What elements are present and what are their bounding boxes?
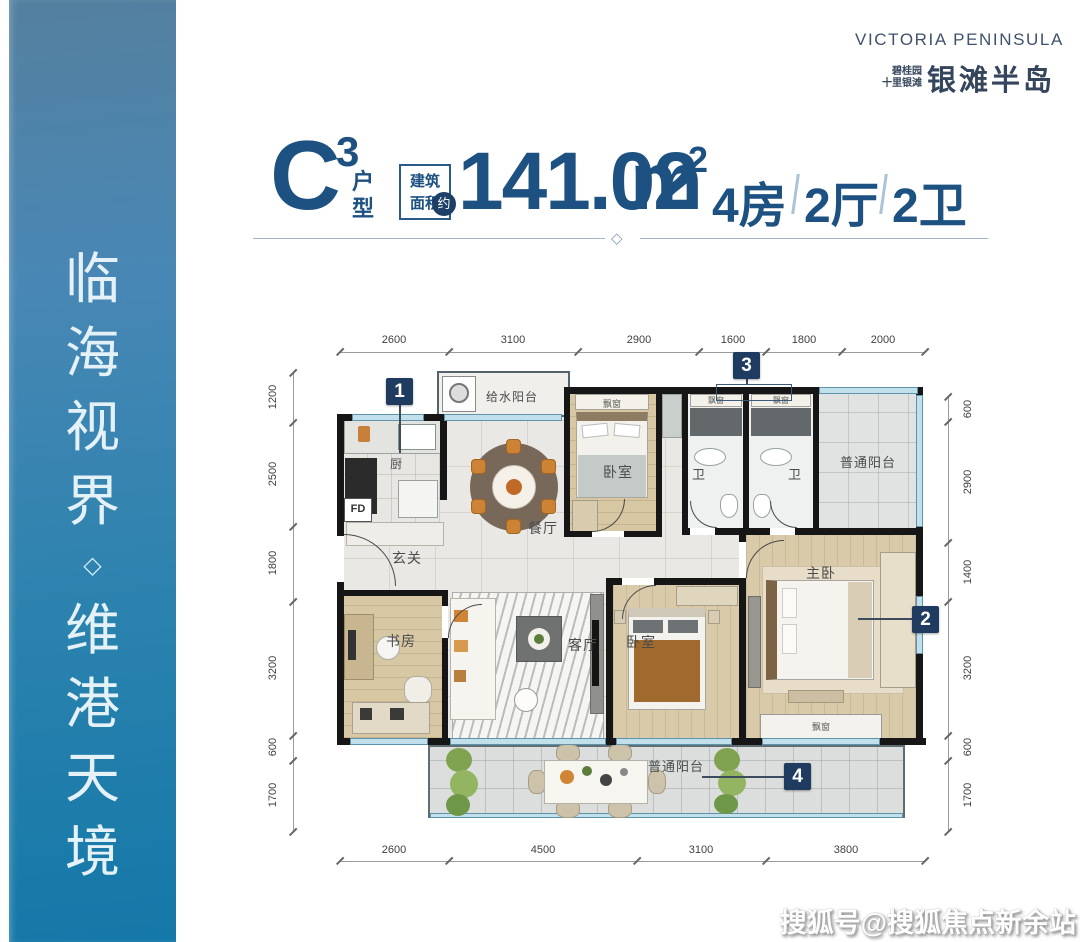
shower-area xyxy=(751,408,811,436)
pillow xyxy=(581,423,608,439)
plant-icon xyxy=(718,770,746,796)
brand-logo: VICTORIA PENINSULA 碧桂园 十里银滩 银滩半岛 xyxy=(855,30,1055,99)
sofa-pillow xyxy=(454,670,466,682)
brand-logo-en: VICTORIA PENINSULA xyxy=(855,30,1055,50)
dim-label: 3200 xyxy=(267,646,279,690)
dim-label: 600 xyxy=(962,387,974,431)
wall xyxy=(337,590,448,596)
window xyxy=(350,738,428,745)
dim-label: 3100 xyxy=(679,844,723,856)
toilet xyxy=(753,494,771,518)
dim-tick xyxy=(921,348,929,356)
food-item xyxy=(582,766,592,776)
bay-window-label: 飘窗 xyxy=(760,720,882,733)
dim-label: 4500 xyxy=(521,844,565,856)
pillow xyxy=(668,620,698,633)
door-opening xyxy=(770,528,795,535)
kitchen-deco xyxy=(358,426,370,442)
door-opening xyxy=(442,606,448,638)
window xyxy=(352,414,424,421)
plant-icon xyxy=(714,794,738,814)
area-label-line1: 建筑 xyxy=(401,170,449,191)
kitchen-fridge xyxy=(398,480,438,518)
media-cabinet xyxy=(748,596,761,688)
dim-label: 1200 xyxy=(267,375,279,419)
dim-label: 1800 xyxy=(267,541,279,585)
area-label-badge: 约 xyxy=(432,192,456,216)
unit-type-char2: 型 xyxy=(352,191,374,223)
slogan-char: 维 xyxy=(65,603,120,658)
marker-4-leader xyxy=(702,776,784,778)
slogan-char: 天 xyxy=(65,751,120,806)
duct-shaft xyxy=(662,394,682,438)
spec-divider xyxy=(791,174,800,214)
dim-label: 2600 xyxy=(372,844,416,856)
dim-label: 1800 xyxy=(782,334,826,346)
plant-icon xyxy=(446,794,470,816)
door-opening xyxy=(739,542,746,578)
marker-2-leader xyxy=(858,618,912,620)
window xyxy=(616,738,732,745)
wall xyxy=(606,578,613,745)
window xyxy=(916,395,923,527)
brand-logo-cn-small-2: 十里银滩 xyxy=(882,78,922,90)
dim-tick xyxy=(921,857,929,865)
marker-1: 1 xyxy=(386,378,413,405)
dim-label: 2900 xyxy=(962,460,974,504)
door-opening xyxy=(592,531,624,537)
room-label-kitchen: 厨 xyxy=(390,455,403,472)
title-underline xyxy=(640,238,988,239)
dim-label: 3800 xyxy=(824,844,868,856)
plant-icon xyxy=(714,748,740,772)
bed-bench xyxy=(788,690,844,703)
room-label-foyer: 玄关 xyxy=(392,548,422,568)
spec-halls: 2厅 xyxy=(804,166,879,236)
dim-line-right xyxy=(948,397,949,832)
wall xyxy=(440,414,447,500)
unit-type-letter: C xyxy=(270,126,341,224)
dim-label: 2500 xyxy=(267,452,279,496)
wall xyxy=(739,528,923,535)
patio-table xyxy=(544,760,648,804)
dim-label: 3100 xyxy=(491,334,535,346)
area-unit-sup: 2 xyxy=(688,139,708,181)
wardrobe xyxy=(676,586,738,606)
washer-drum-icon xyxy=(449,383,469,403)
wall xyxy=(656,387,662,537)
room-label-bath-a: 卫 xyxy=(692,464,706,483)
spec-divider xyxy=(879,174,888,214)
dim-tick xyxy=(944,828,952,836)
fd-box: FD xyxy=(344,498,372,522)
room-label-bath-b: 卫 xyxy=(788,464,802,483)
kitchen-sink xyxy=(398,424,436,450)
wall xyxy=(743,387,749,534)
window xyxy=(819,387,918,394)
food-item xyxy=(600,774,612,786)
room-label-study: 书房 xyxy=(386,631,416,651)
title-divider-diamond-icon: ◇ xyxy=(608,229,626,247)
room-label-balcony-right: 普通阳台 xyxy=(840,452,896,471)
dim-line-top xyxy=(340,352,925,353)
dim-label: 1400 xyxy=(962,550,974,594)
title-underline xyxy=(253,238,605,239)
dim-label: 1700 xyxy=(962,773,974,817)
fd-label: FD xyxy=(345,499,371,520)
dining-chair xyxy=(541,459,556,474)
dim-label: 600 xyxy=(267,725,279,769)
sidebar-slogan: 临 海 视 界 ◇ 维 港 天 境 xyxy=(9,0,176,942)
shower-area xyxy=(690,408,742,436)
brand-logo-cn-small-1: 碧桂园 xyxy=(882,66,922,78)
sliding-door xyxy=(444,414,562,421)
dim-label: 2000 xyxy=(861,334,905,346)
door-opening xyxy=(690,528,715,535)
watermark: 搜狐号@搜狐焦点新余站 xyxy=(780,901,1076,940)
dim-line-bottom xyxy=(340,861,925,862)
slogan-char: 境 xyxy=(65,825,120,880)
diamond-icon: ◇ xyxy=(83,554,101,578)
sofa-pillow xyxy=(454,640,468,652)
marker-3-target-outline xyxy=(716,384,792,401)
dim-label: 1700 xyxy=(267,773,279,817)
dining-chair xyxy=(471,499,486,514)
room-label-dining: 餐厅 xyxy=(528,518,558,538)
room-label-bedroom-mid: 卧室 xyxy=(626,632,656,652)
slogan-char: 港 xyxy=(65,677,120,732)
brand-logo-cn-main: 银滩半岛 xyxy=(927,57,1055,99)
spec-rooms: 4房 xyxy=(712,166,787,236)
plant-icon xyxy=(446,748,472,772)
marker-3: 3 xyxy=(733,352,760,379)
wall xyxy=(564,394,570,537)
bay-window-label: 飘窗 xyxy=(575,397,649,410)
toilet xyxy=(720,494,738,518)
monitor xyxy=(348,630,356,660)
window xyxy=(762,738,880,745)
wall xyxy=(682,387,688,534)
wall xyxy=(813,387,819,534)
food-item xyxy=(560,770,574,784)
floorplan-poster: 临 海 视 界 ◇ 维 港 天 境 VICTORIA PENINSULA 碧桂园… xyxy=(0,0,1080,942)
bed-throw xyxy=(848,582,872,678)
slogan-char: 临 xyxy=(65,252,120,307)
room-label-bedroom-top: 卧室 xyxy=(603,462,633,482)
cabinet-item xyxy=(360,708,372,720)
dining-chair xyxy=(541,499,556,514)
wardrobe xyxy=(880,552,916,688)
door-opening xyxy=(337,536,344,582)
door-opening xyxy=(622,578,654,585)
dining-chair xyxy=(506,519,521,534)
balcony-bottom-rail xyxy=(430,813,903,818)
side-table xyxy=(514,688,538,712)
spec-baths: 2卫 xyxy=(892,166,967,236)
marker-2: 2 xyxy=(912,606,939,633)
sliding-door xyxy=(450,738,606,745)
lounge-chair xyxy=(404,676,432,704)
slogan-char: 界 xyxy=(65,474,120,529)
dim-label: 2900 xyxy=(617,334,661,346)
slogan-char: 海 xyxy=(65,326,120,381)
dim-label: 1600 xyxy=(711,334,755,346)
room-label-balcony-bottom: 普通阳台 xyxy=(648,756,704,775)
dining-centerpiece xyxy=(506,479,522,495)
dim-label: 3200 xyxy=(962,646,974,690)
nightstand xyxy=(708,610,720,624)
pillow xyxy=(613,423,640,438)
marker-4: 4 xyxy=(784,763,811,790)
dining-chair xyxy=(471,459,486,474)
dim-tick xyxy=(289,828,297,836)
pillow xyxy=(782,588,797,618)
plant-icon xyxy=(534,634,544,644)
slogan-char: 视 xyxy=(65,400,120,455)
room-label-master: 主卧 xyxy=(806,563,836,583)
food-item xyxy=(620,768,628,776)
marker-1-leader xyxy=(399,405,401,453)
dim-label: 600 xyxy=(962,725,974,769)
dining-chair xyxy=(506,439,521,454)
cabinet-item xyxy=(390,708,404,720)
room-label-water-balcony: 给水阳台 xyxy=(486,388,538,405)
pillow xyxy=(782,624,797,654)
dim-label: 2600 xyxy=(372,334,416,346)
room-label-living: 客厅 xyxy=(568,635,598,655)
